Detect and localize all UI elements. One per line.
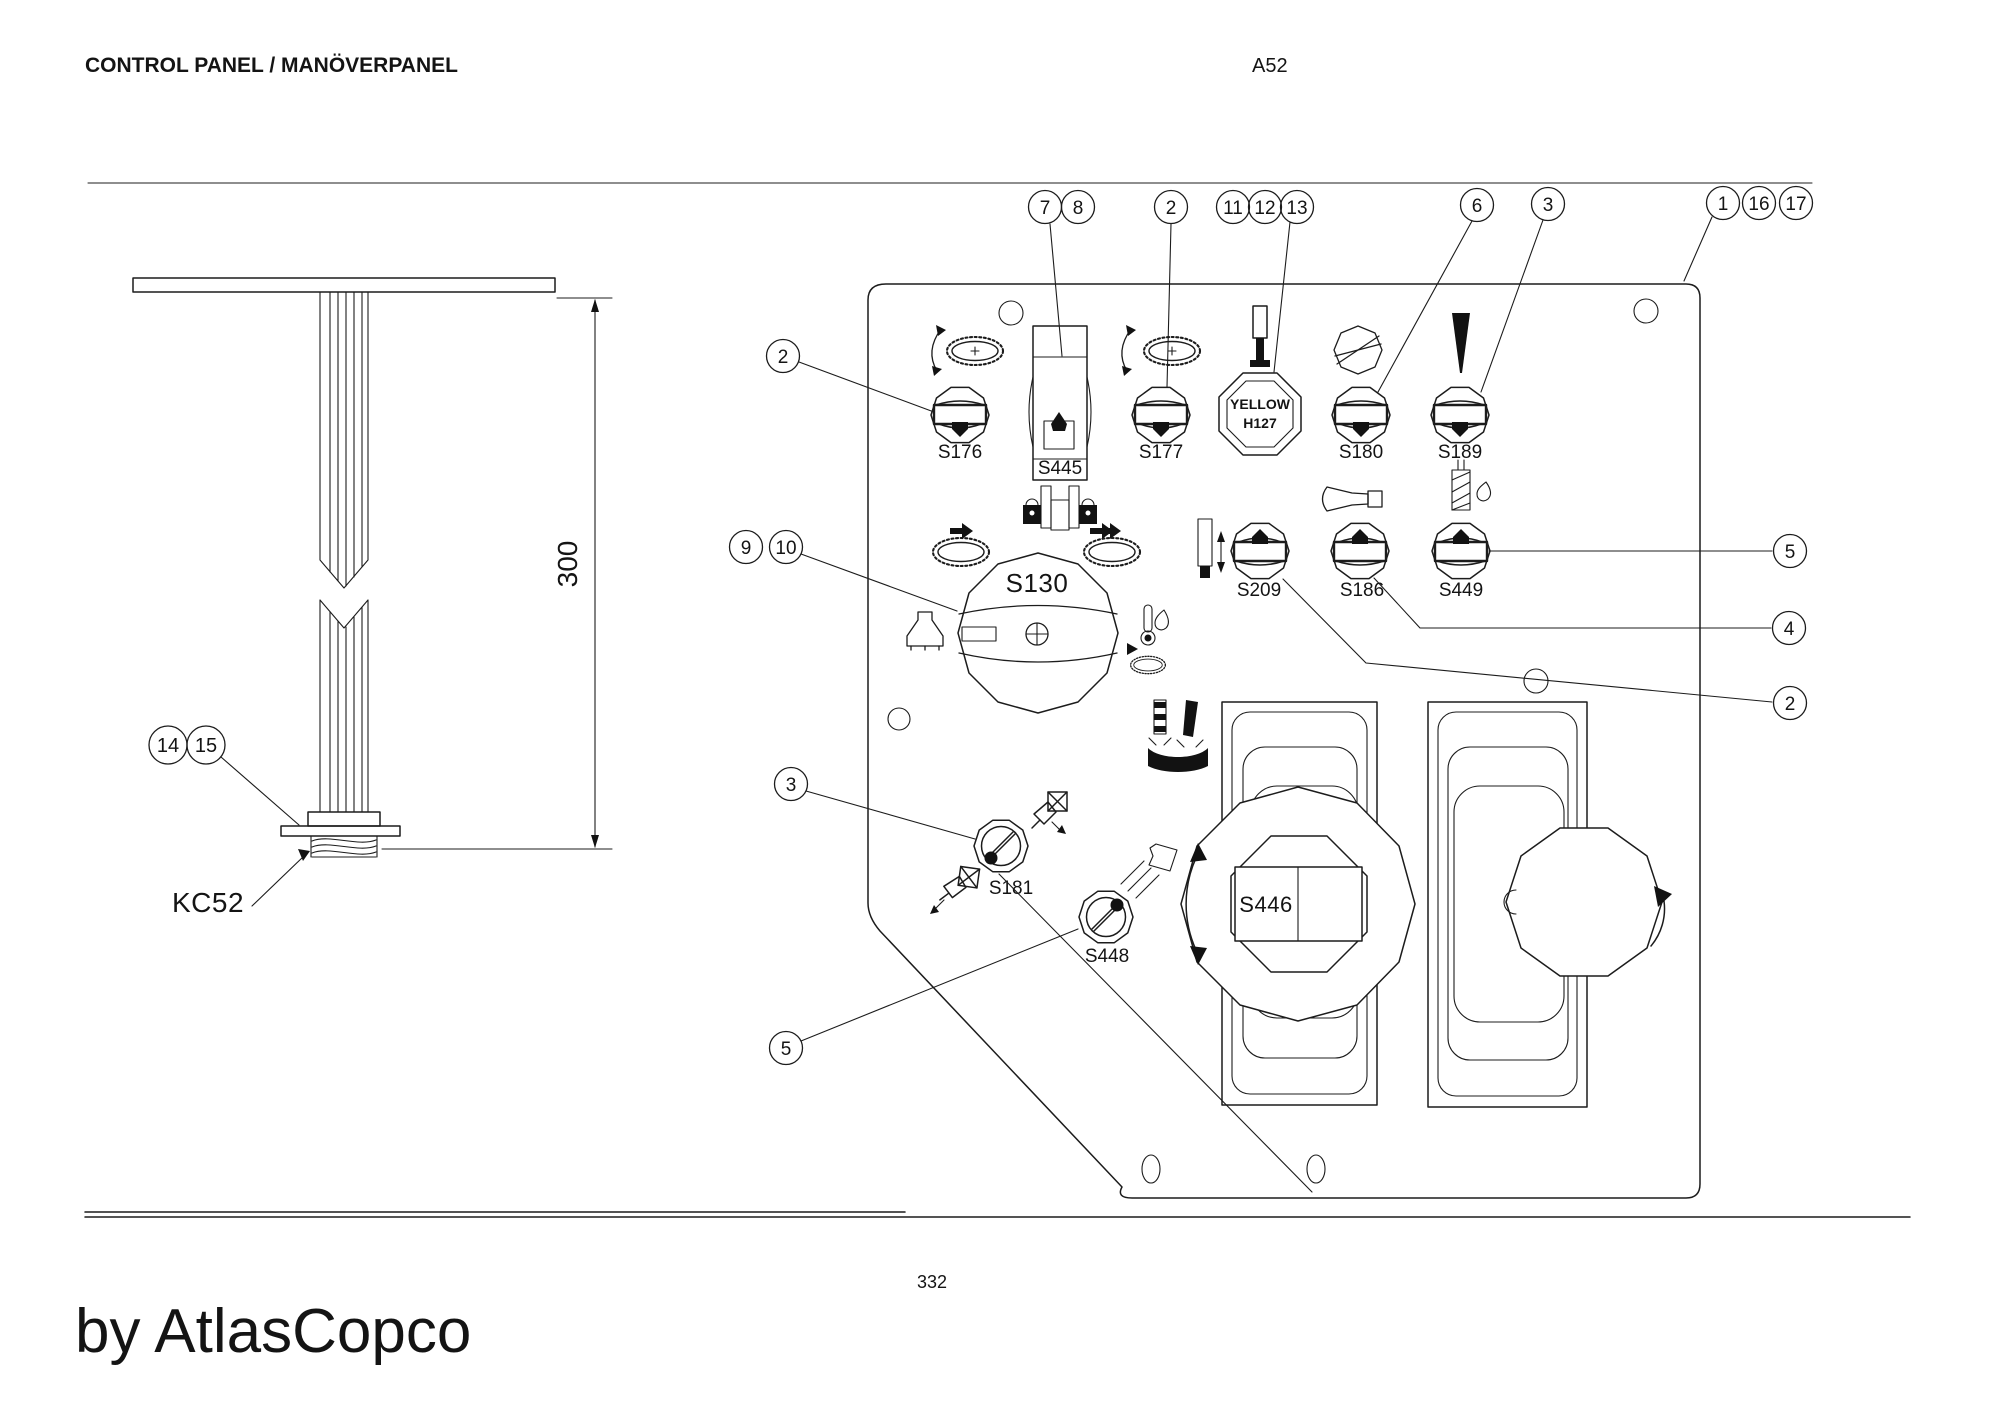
drill-steel-icon xyxy=(1250,306,1270,367)
part-ref-kc52: KC52 xyxy=(172,887,244,918)
panel-outline xyxy=(868,284,1700,1198)
switch-label: S449 xyxy=(1439,580,1483,601)
balloon-label: 16 xyxy=(1748,194,1769,215)
balloon-label: 13 xyxy=(1286,198,1307,219)
switch-s209[interactable]: S209 xyxy=(1198,519,1289,601)
wedge-icon xyxy=(1452,313,1470,373)
button-color-label: YELLOW xyxy=(1230,396,1291,412)
horn-icon xyxy=(1323,487,1383,511)
balloon-15-label: 15 xyxy=(195,735,217,757)
spray-icon xyxy=(1121,844,1177,898)
balloon-label: 3 xyxy=(786,775,797,796)
switch-label: S209 xyxy=(1237,580,1281,601)
balloon-label: 7 xyxy=(1040,198,1051,219)
page-number: 332 xyxy=(917,1272,947,1292)
temperature-icon xyxy=(1141,605,1168,645)
leader-lines xyxy=(799,217,1772,1192)
mounting-hole xyxy=(1634,299,1658,323)
balloon-label: 1 xyxy=(1718,194,1729,215)
switch-s176[interactable]: S176 xyxy=(931,325,1003,463)
connector-icon xyxy=(1041,486,1079,530)
probe-shaft-upper xyxy=(320,292,368,588)
leader-kc52-arrow xyxy=(298,849,310,861)
padlock-icon xyxy=(1079,499,1097,524)
balloon-label: 10 xyxy=(775,538,796,559)
switch-label: S446 xyxy=(1239,892,1292,917)
leader-balloon-15 xyxy=(221,757,299,825)
balloon-label: 2 xyxy=(1785,694,1796,715)
joystick-knob[interactable] xyxy=(1506,828,1662,976)
mounting-holes xyxy=(888,299,1658,1183)
switch-s177[interactable]: S177 xyxy=(1122,325,1200,463)
dimension-value: 300 xyxy=(552,541,583,588)
balloon-label: 12 xyxy=(1254,198,1275,219)
balloon-label: 5 xyxy=(1785,542,1796,563)
padlock-icon xyxy=(1023,499,1041,524)
control-panel-drawing: CONTROL PANEL / MANÖVERPANEL A52 332 by … xyxy=(0,0,2000,1413)
switch-s189[interactable]: S189 xyxy=(1431,313,1490,510)
brand-watermark: by AtlasCopco xyxy=(75,1297,471,1366)
balloon-label: 5 xyxy=(781,1039,792,1060)
probe-top-plate xyxy=(133,278,555,292)
mounting-hole xyxy=(1524,669,1548,693)
switch-label: S177 xyxy=(1139,442,1183,463)
balloon-label: 11 xyxy=(1223,198,1243,219)
balloon-label: 6 xyxy=(1472,196,1483,217)
button-id-label: H127 xyxy=(1243,415,1277,431)
beam-small-icon xyxy=(1131,656,1166,673)
percussion-icons xyxy=(1148,700,1208,772)
knob-s448[interactable]: S448 xyxy=(1079,844,1177,967)
switch-s445[interactable]: S445 xyxy=(1023,326,1097,530)
balloon-label: 2 xyxy=(1166,198,1177,219)
balloon-label: 2 xyxy=(778,347,789,368)
collaring-icon xyxy=(907,612,943,650)
knob-pointer xyxy=(962,627,996,641)
grease-gun-icon xyxy=(940,864,980,905)
feed-fast-icon xyxy=(1084,538,1140,566)
probe-shaft-lower xyxy=(320,600,368,812)
probe-flange xyxy=(281,826,400,836)
balloon-label: 3 xyxy=(1543,195,1554,216)
joystick-right[interactable] xyxy=(1428,702,1672,1107)
parts-catalog-page: CONTROL PANEL / MANÖVERPANEL A52 332 by … xyxy=(0,0,2000,1413)
mounting-hole xyxy=(1307,1155,1325,1183)
rotary-selector-s130[interactable]: S130 xyxy=(907,523,1168,713)
switch-label: S448 xyxy=(1085,946,1129,967)
switch-label: S181 xyxy=(989,878,1033,899)
switch-label: S445 xyxy=(1038,458,1082,479)
grease-gun-icon xyxy=(1032,792,1067,828)
mounting-hole xyxy=(999,301,1023,325)
swing-arc-icon xyxy=(932,329,941,371)
drill-rod-icon xyxy=(1452,460,1470,510)
fan-icon xyxy=(1334,326,1382,374)
dimension-300: 300 xyxy=(382,298,612,849)
leader-kc52 xyxy=(252,856,304,906)
joystick-s446[interactable]: S446 xyxy=(1148,700,1415,1105)
switch-label: S180 xyxy=(1339,442,1383,463)
droplet-icon xyxy=(1477,482,1490,501)
mounting-hole xyxy=(888,708,910,730)
switch-label: S176 xyxy=(938,442,982,463)
feed-up-down-icon xyxy=(1198,519,1225,578)
button-h127[interactable]: YELLOW H127 xyxy=(1219,306,1301,455)
balloon-14-label: 14 xyxy=(157,735,179,757)
balloon-label: 9 xyxy=(741,538,752,559)
switch-label: S130 xyxy=(1006,568,1069,598)
feed-slow-icon xyxy=(933,538,989,566)
page-title: CONTROL PANEL / MANÖVERPANEL xyxy=(85,54,458,77)
balloon-label: 17 xyxy=(1785,194,1806,215)
knob-s181[interactable]: S181 xyxy=(930,792,1067,914)
mounting-hole xyxy=(1142,1155,1160,1183)
switch-label: S189 xyxy=(1438,442,1482,463)
switch-label: S186 xyxy=(1340,580,1384,601)
probe-collar xyxy=(308,812,380,826)
switch-s186[interactable]: S186 xyxy=(1331,523,1389,601)
arrow-icon xyxy=(1127,643,1138,655)
balloon-label: 4 xyxy=(1784,619,1795,640)
probe-thread xyxy=(311,836,377,857)
balloon-label: 8 xyxy=(1073,198,1084,219)
switch-s449[interactable]: S449 xyxy=(1432,523,1490,601)
doc-code: A52 xyxy=(1252,55,1288,77)
switch-s180[interactable]: S180 xyxy=(1323,326,1391,511)
swing-arc-icon xyxy=(1122,329,1131,371)
probe-side-view: 300 KC52 14 15 xyxy=(133,278,612,918)
